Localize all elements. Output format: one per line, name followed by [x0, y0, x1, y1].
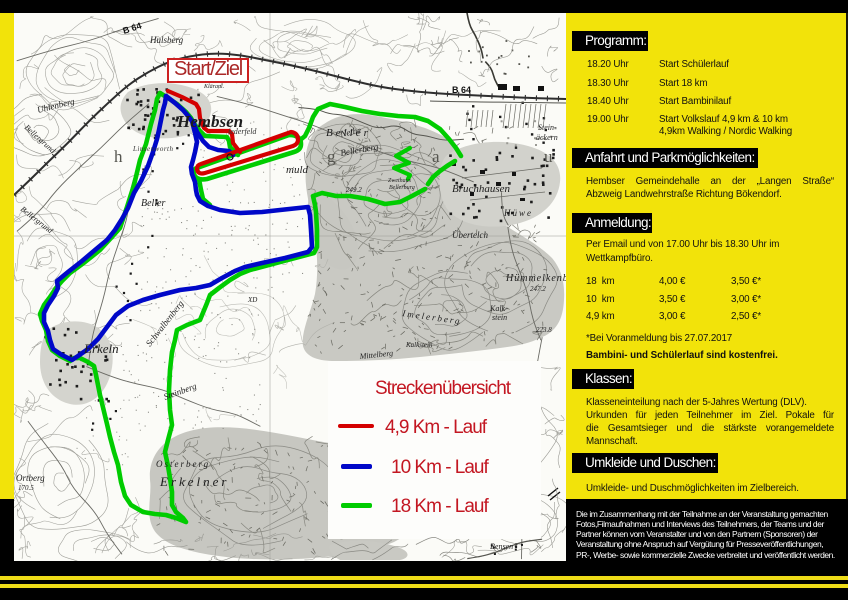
svg-text:247.2: 247.2: [530, 285, 546, 293]
svg-text:Ortberg: Ortberg: [16, 473, 45, 483]
svg-text:Bensen: Bensen: [490, 542, 513, 551]
svg-text:stein: stein: [492, 313, 507, 322]
svg-text:Bruchhausen: Bruchhausen: [452, 183, 511, 195]
svg-text:Linsenworth: Linsenworth: [132, 145, 174, 153]
svg-text:Hüwe: Hüwe: [503, 208, 533, 218]
svg-text:Übertelch: Übertelch: [452, 230, 488, 240]
svg-text:Bellerburg: Bellerburg: [389, 185, 415, 191]
svg-text:223.8: 223.8: [536, 326, 552, 334]
svg-text:u: u: [544, 147, 553, 166]
svg-text:Zwethaus: Zwethaus: [388, 178, 412, 184]
svg-text:170.5: 170.5: [18, 484, 34, 492]
svg-text:Stein-: Stein-: [538, 123, 557, 132]
svg-text:a: a: [432, 147, 440, 166]
svg-text:Kalkstein: Kalkstein: [405, 341, 433, 349]
svg-text:Osterberg: Osterberg: [156, 459, 210, 469]
svg-text:Kläranl.: Kläranl.: [203, 84, 224, 90]
svg-text:Erkeln: Erkeln: [83, 341, 119, 356]
svg-text:249.2: 249.2: [346, 186, 362, 194]
svg-text:B 64: B 64: [452, 85, 471, 95]
svg-text:iederfeld: iederfeld: [228, 127, 257, 136]
svg-text:muld: muld: [286, 164, 309, 176]
svg-text:Hulsberg: Hulsberg: [149, 35, 184, 45]
svg-text:Erkelner: Erkelner: [159, 474, 229, 489]
svg-text:Hümmelkenberg: Hümmelkenberg: [505, 273, 566, 284]
svg-text:g: g: [327, 147, 336, 166]
svg-text:Beller: Beller: [141, 198, 166, 209]
svg-text:äckern: äckern: [536, 133, 558, 142]
svg-text:h: h: [114, 147, 123, 166]
svg-text:Kalk-: Kalk-: [489, 304, 508, 313]
svg-text:XD: XD: [247, 296, 257, 304]
